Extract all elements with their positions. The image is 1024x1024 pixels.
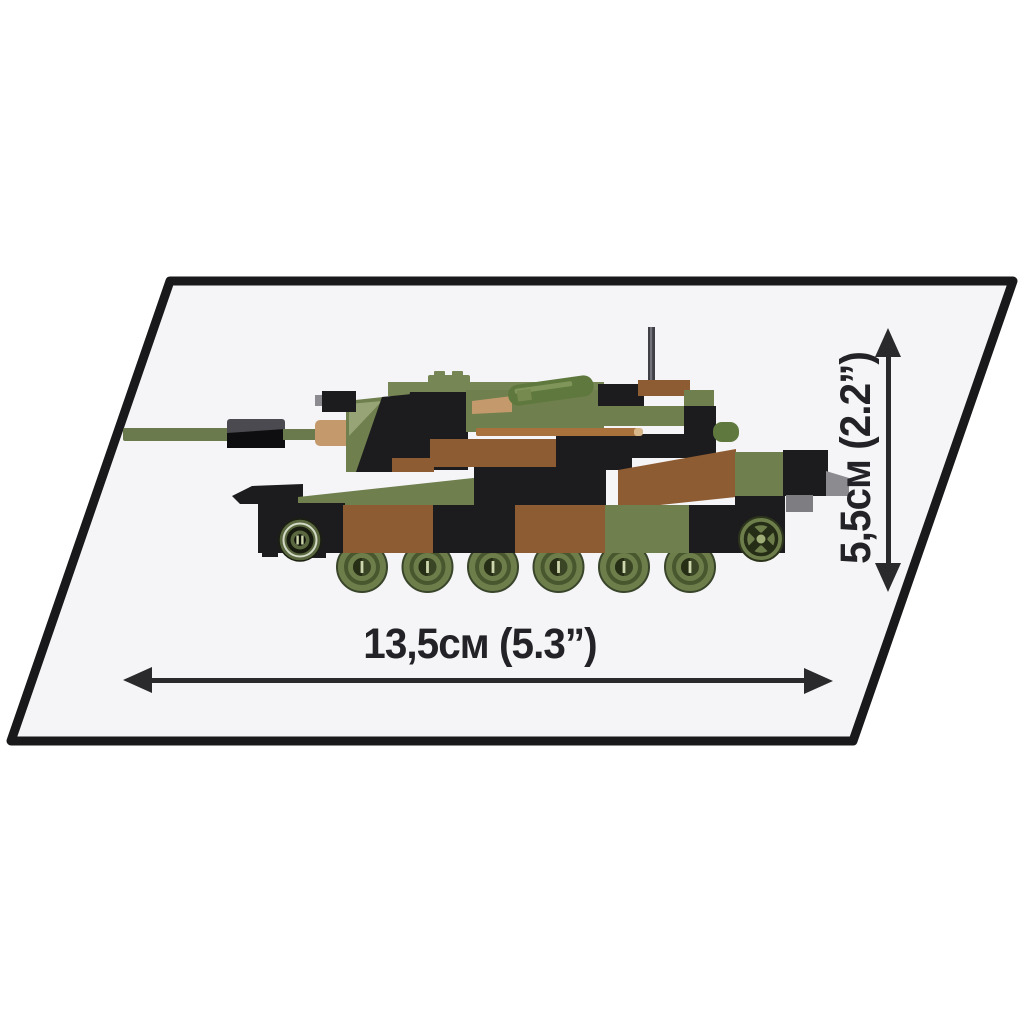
bracket-stud [262,546,278,557]
side-skirts [258,496,785,558]
product-dimension-diagram: 13,5см (5.3”) 5,5см (2.2”) [0,0,1024,1024]
width-dimension-label: 13,5см (5.3”) [292,620,668,668]
camo-block-brown [430,439,558,467]
camo-block-brown [638,380,690,396]
camo-block-black [556,432,632,470]
skirt-green [605,505,691,553]
copper-stripe [476,428,640,436]
gun-barrel-inner [283,429,320,440]
studs-brick [428,375,470,385]
antenna-highlight [650,327,652,389]
height-dimension-label: 5,5см (2.2”) [832,317,880,599]
skirt-brown [515,505,607,553]
stud [452,371,463,376]
idler-wheel [279,519,321,561]
copper-stripe-tip [634,428,643,436]
hull-camo-black [474,467,606,507]
gun-sight [322,391,356,412]
gun-barrel [123,428,235,441]
rear-overhang [783,450,828,496]
skirt-black [433,505,517,553]
camo-block-black [598,384,644,408]
rear-gray-block [786,495,813,512]
rear-camo-green [735,452,785,496]
camo-block-brown [392,458,434,472]
smoke-launcher [713,422,739,442]
skirt-brown [343,505,435,553]
drive-sprocket [738,516,783,561]
camo-block-green [684,390,714,408]
stud [434,371,445,376]
